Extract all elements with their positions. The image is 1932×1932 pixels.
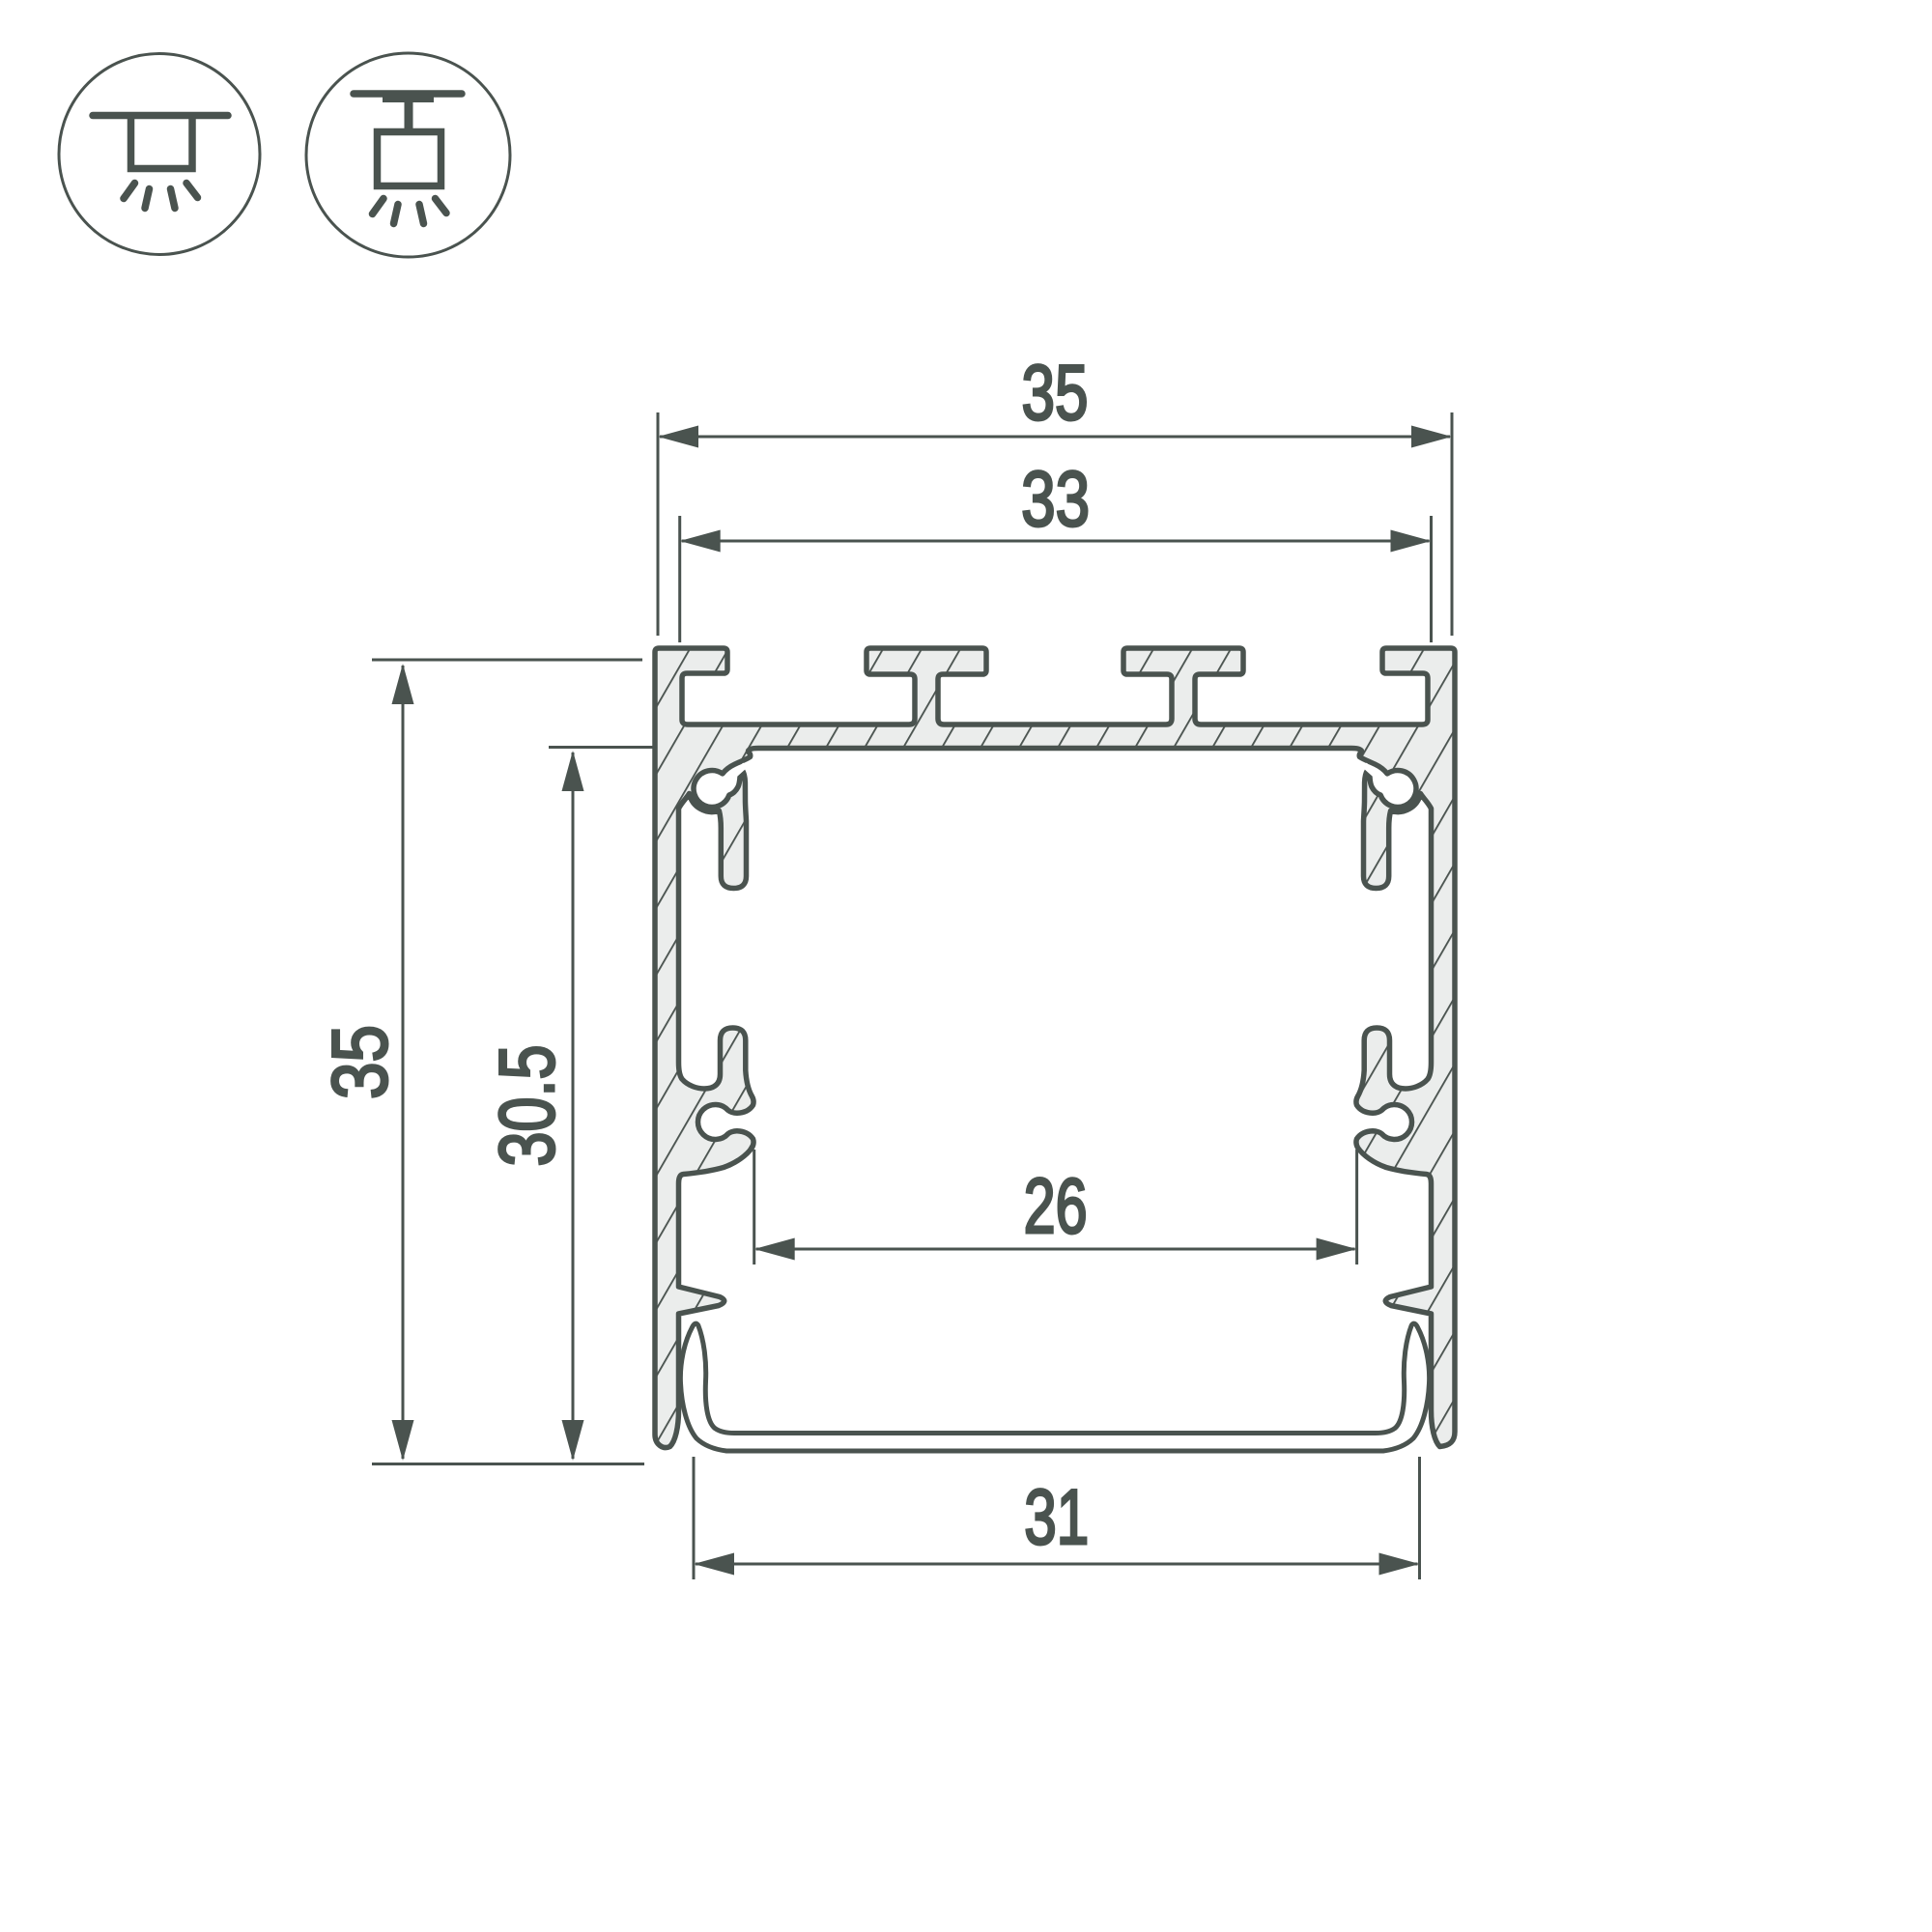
svg-text:35: 35 <box>1022 350 1089 437</box>
svg-text:30.5: 30.5 <box>484 1045 571 1167</box>
svg-text:31: 31 <box>1024 1474 1089 1561</box>
svg-text:35: 35 <box>317 1025 404 1099</box>
svg-text:26: 26 <box>1024 1163 1088 1250</box>
svg-text:33: 33 <box>1021 456 1090 543</box>
